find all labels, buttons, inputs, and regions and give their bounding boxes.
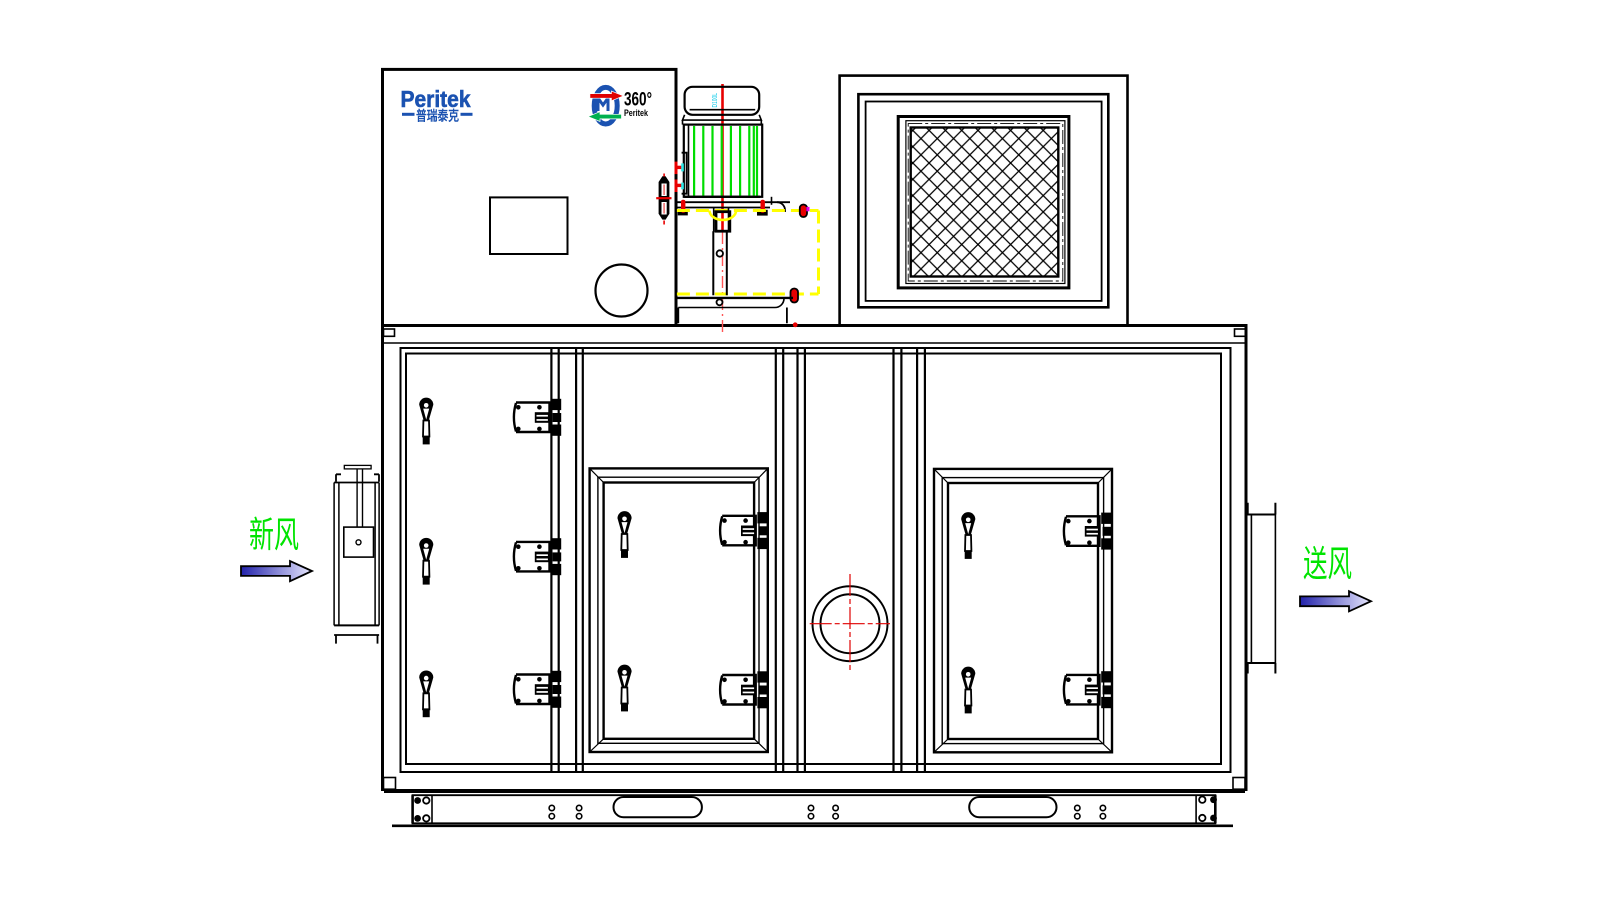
- svg-text:Peritek: Peritek: [624, 108, 649, 119]
- svg-text:新风: 新风: [249, 514, 299, 555]
- svg-text:送风: 送风: [1303, 543, 1352, 584]
- svg-text:D100L: D100L: [712, 93, 719, 108]
- svg-text:普瑞泰克: 普瑞泰克: [416, 108, 459, 124]
